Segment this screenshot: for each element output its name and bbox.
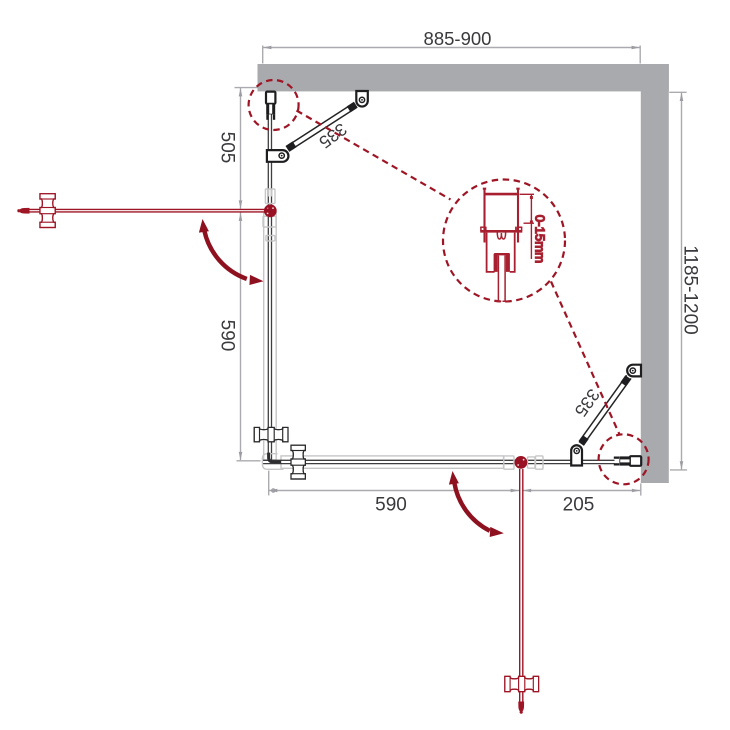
svg-text:505: 505 <box>217 132 238 164</box>
svg-text:885-900: 885-900 <box>424 28 492 49</box>
svg-text:1185-1200: 1185-1200 <box>680 245 701 334</box>
svg-text:205: 205 <box>563 494 595 515</box>
svg-text:590: 590 <box>375 495 407 516</box>
svg-text:0-15mm: 0-15mm <box>533 215 548 263</box>
svg-text:590: 590 <box>217 320 238 352</box>
